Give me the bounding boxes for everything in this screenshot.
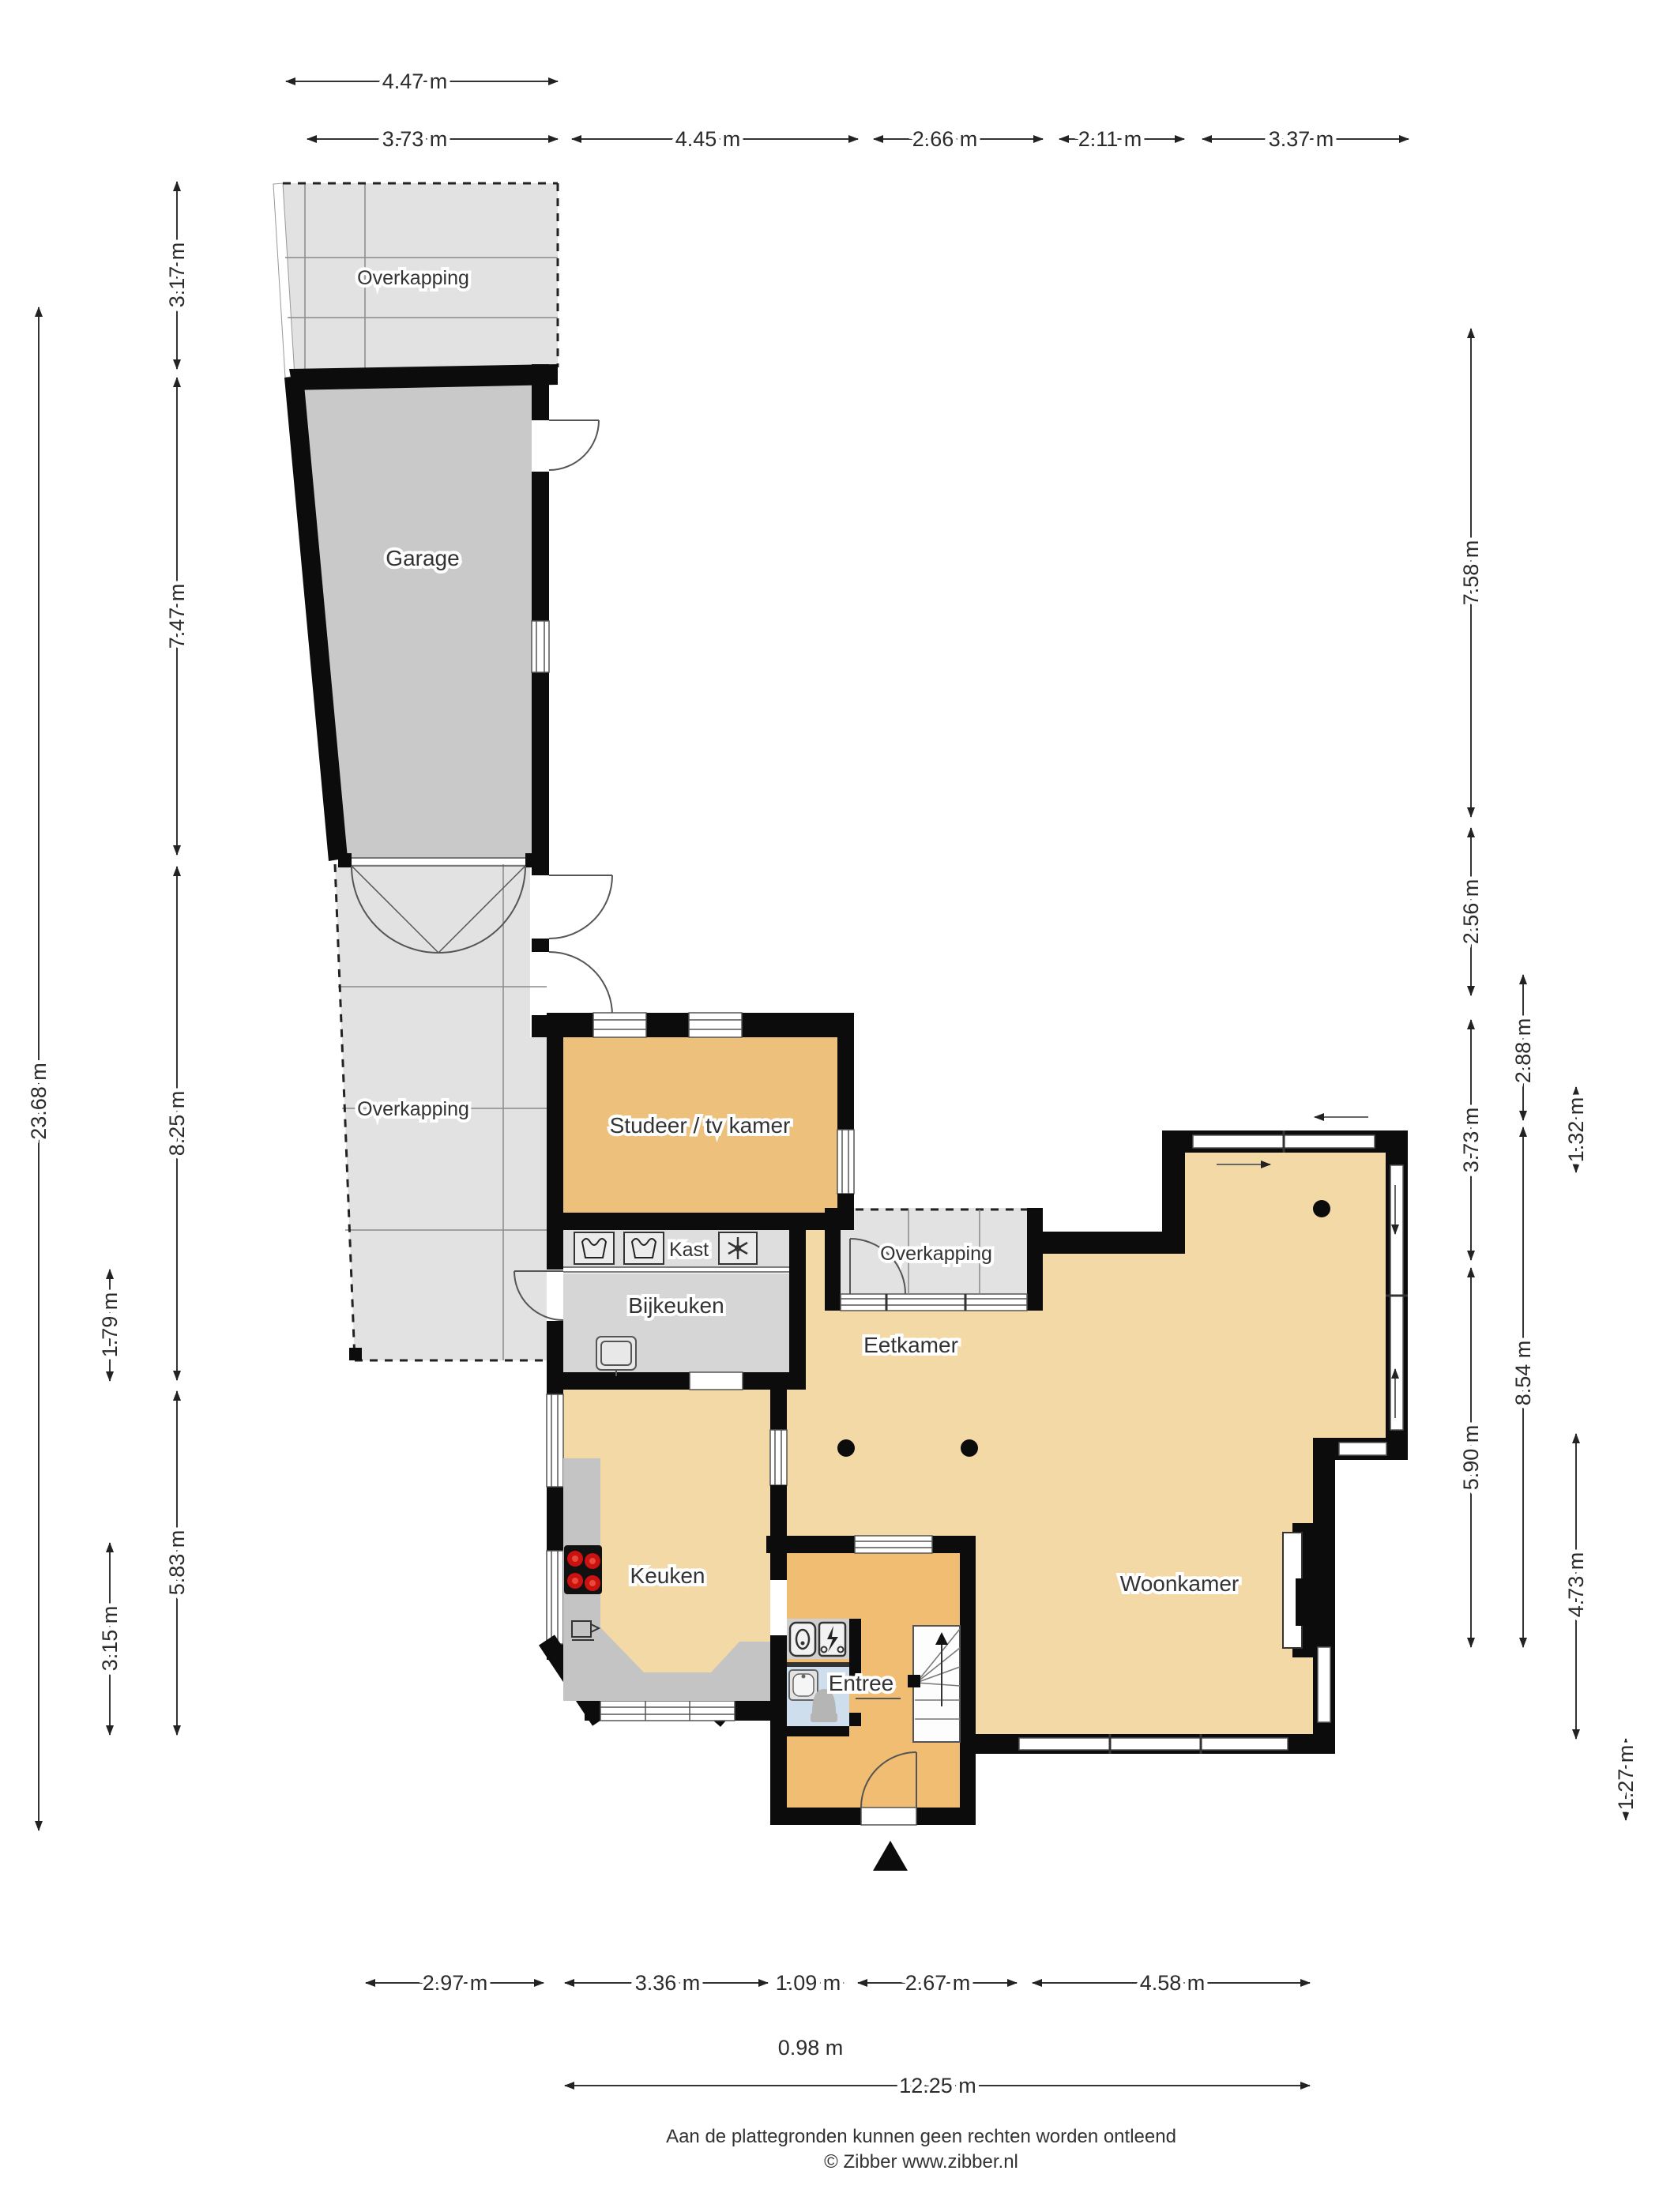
label-entree: Entree — [829, 1671, 894, 1695]
floor-plan-canvas: Overkapping Garage Overkapping Studeer /… — [0, 0, 1659, 2212]
dim-left-3-17: 3.17 m — [165, 243, 189, 308]
dim-top-2-66: 2.66 m — [912, 127, 978, 151]
dim-right-5-90: 5.90 m — [1459, 1425, 1483, 1491]
washing-machine-icon — [574, 1232, 614, 1264]
dim-top-3-37: 3.37 m — [1269, 127, 1334, 151]
dim-top-4-45: 4.45 m — [675, 127, 741, 151]
dim-right-7-58: 7.58 m — [1459, 540, 1483, 606]
label-overkapping-top: Overkapping — [357, 267, 469, 289]
dim-top-2-11: 2.11 m — [1078, 127, 1142, 151]
footer: Aan de plattegronden kunnen geen rechten… — [666, 2126, 1176, 2172]
entrance-triangle-icon — [873, 1841, 908, 1871]
dim-left-23-68: 23.68 m — [27, 1063, 51, 1140]
dim-bottom-0-98: 0.98 m — [778, 2036, 844, 2060]
fireplace — [1283, 1523, 1315, 1657]
label-eetkamer: Eetkamer — [863, 1333, 958, 1357]
label-woonkamer: Woonkamer — [1120, 1571, 1239, 1596]
dim-bottom-1-09: 1.09 m — [776, 1971, 841, 1995]
dim-left-5-83: 5.83 m — [165, 1530, 189, 1596]
label-garage: Garage — [386, 546, 459, 570]
dim-right-8-54: 8.54 m — [1511, 1341, 1535, 1406]
dim-left-7-47: 7.47 m — [165, 584, 189, 649]
label-overkapping-left: Overkapping — [357, 1098, 469, 1120]
ceiling-light-icon — [1313, 1200, 1330, 1217]
dim-bottom-4-58: 4.58 m — [1140, 1971, 1206, 1995]
label-overkapping-small: Overkapping — [880, 1243, 992, 1265]
dim-top-4-47: 4.47 m — [382, 70, 448, 93]
corner-sink-icon — [789, 1670, 818, 1700]
dim-bottom-12-25: 12.25 m — [899, 2074, 976, 2097]
dim-right-2-88: 2.88 m — [1511, 1018, 1535, 1084]
dim-bottom-2-97: 2.97 m — [423, 1971, 488, 1995]
ventilation-fan-icon — [719, 1232, 757, 1264]
room-fills — [273, 183, 1386, 1808]
label-kast: Kast — [669, 1239, 709, 1261]
dim-right-1-27: 1.27 m — [1614, 1745, 1638, 1811]
floorplan-page: Overkapping Garage Overkapping Studeer /… — [0, 0, 1659, 2212]
label-keuken: Keuken — [630, 1563, 705, 1588]
washing-machine-icon — [624, 1232, 664, 1264]
footer-copyright: © Zibber www.zibber.nl — [824, 2151, 1018, 2172]
dim-left-1-79: 1.79 m — [98, 1292, 122, 1358]
dim-bottom-2-67: 2.67 m — [905, 1971, 971, 1995]
dim-right-1-32: 1.32 m — [1564, 1097, 1588, 1163]
dim-right-2-56: 2.56 m — [1459, 879, 1483, 945]
cooktop-icon — [564, 1545, 602, 1594]
dim-left-3-15: 3.15 m — [98, 1606, 122, 1672]
stairs — [908, 1626, 960, 1742]
footer-disclaimer: Aan de plattegronden kunnen geen rechten… — [666, 2126, 1176, 2147]
electric-meter-icon — [819, 1623, 845, 1656]
dim-top-3-73: 3.73 m — [382, 127, 448, 151]
ceiling-light-icon — [837, 1439, 855, 1457]
boiler-icon — [790, 1623, 815, 1656]
dim-right-3-73: 3.73 m — [1459, 1108, 1483, 1173]
label-studeer: Studeer / tv kamer — [610, 1113, 791, 1138]
label-bijkeuken: Bijkeuken — [628, 1293, 724, 1318]
utility-sink-icon — [596, 1337, 636, 1376]
dim-left-8-25: 8.25 m — [165, 1091, 189, 1157]
ceiling-light-icon — [961, 1439, 978, 1457]
dim-bottom-3-36: 3.36 m — [635, 1971, 701, 1995]
dim-right-4-73: 4.73 m — [1564, 1552, 1588, 1618]
